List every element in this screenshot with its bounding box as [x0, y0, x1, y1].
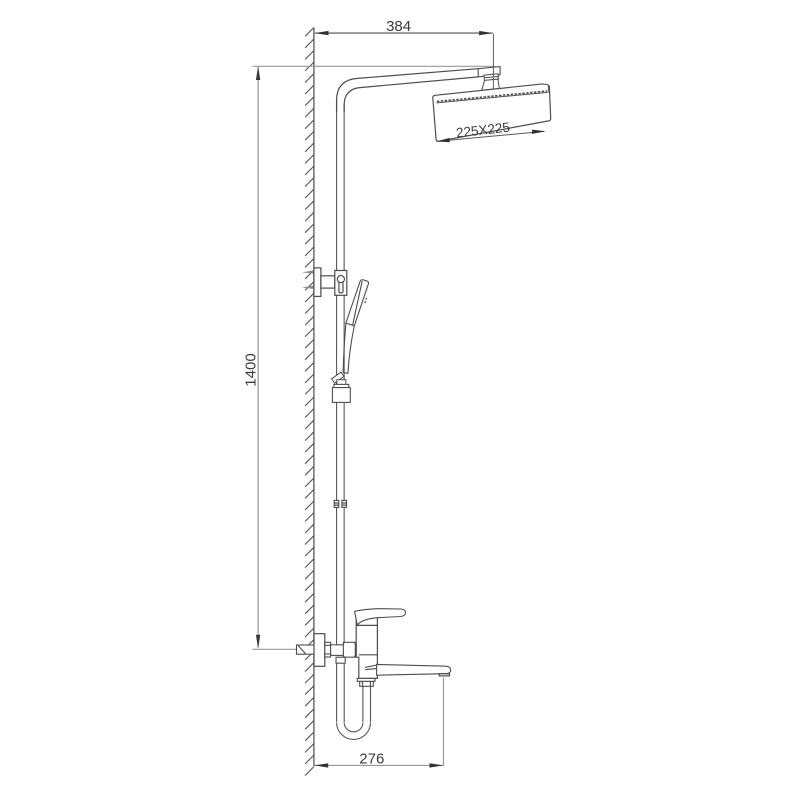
svg-text:276: 276 [359, 751, 384, 768]
svg-text:1400: 1400 [242, 353, 259, 386]
svg-text:384: 384 [386, 18, 411, 35]
